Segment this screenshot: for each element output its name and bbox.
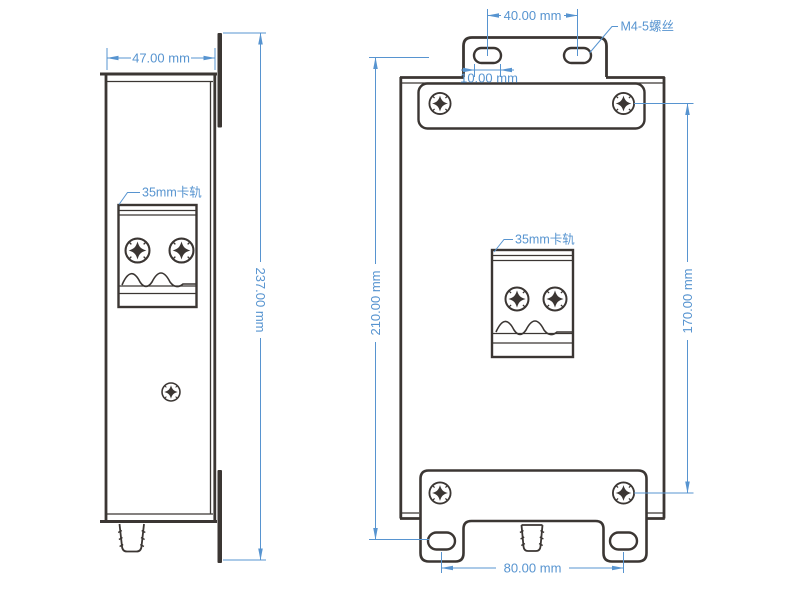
screw-icon: [162, 383, 180, 401]
screw-icon: [126, 239, 150, 263]
side-mounting-plate-top: [218, 33, 223, 128]
screw-icon: [544, 288, 567, 311]
mount-slot-bottom-left: [428, 533, 455, 550]
dim-top-slot-spacing-text: 40.00 mm: [504, 8, 562, 23]
screw-icon: [170, 239, 194, 263]
din-rail-label-side: 35mm卡轨: [119, 186, 202, 205]
screw-icon: [429, 93, 450, 114]
power-plug-side: [118, 524, 145, 552]
dim-bottom-slot-spacing-text: 80.00 mm: [504, 561, 562, 576]
screw-icon: [613, 482, 634, 503]
dim-left-height: 210.00 mm: [368, 58, 429, 540]
side-mounting-plate-bottom: [218, 470, 223, 563]
dim-slot-width-text: 10.00 mm: [460, 71, 518, 86]
dim-bottom-slot-spacing: 80.00 mm: [442, 552, 624, 576]
drawing-canvas: 35mm卡轨 47.00 mm 237.00 mm: [0, 0, 800, 600]
front-view: 35mm卡轨 40.00 mm 10.00 mm: [368, 8, 695, 576]
bottom-bracket-plate: [421, 471, 647, 562]
screw-spec-label-text: M4-5螺丝: [621, 20, 674, 34]
dim-right-height-text: 170.00 mm: [680, 268, 695, 333]
power-plug-front: [520, 525, 544, 551]
clip-spring-wave: [122, 273, 197, 287]
din-rail-clip-front: [492, 250, 573, 357]
mount-slot-bottom-right: [610, 533, 637, 550]
side-view: 35mm卡轨 47.00 mm 237.00 mm: [100, 33, 268, 563]
dim-top-slot-spacing: 40.00 mm: [488, 8, 578, 56]
din-rail-clip-side: [119, 205, 197, 307]
clip-spring-wave: [496, 321, 572, 335]
dim-side-height-text: 237.00 mm: [253, 267, 268, 332]
din-rail-label-front-text: 35mm卡轨: [515, 233, 575, 247]
screw-icon: [429, 482, 450, 503]
dim-left-height-text: 210.00 mm: [368, 270, 383, 335]
dim-side-width-text: 47.00 mm: [132, 51, 190, 66]
dim-side-width: 47.00 mm: [107, 48, 215, 70]
din-rail-label-side-text: 35mm卡轨: [142, 186, 202, 200]
screw-spec-label: M4-5螺丝: [590, 20, 674, 54]
top-bracket-plate: [419, 84, 645, 129]
dim-slot-width: 10.00 mm: [460, 64, 518, 86]
screw-icon: [613, 93, 634, 114]
screw-icon: [506, 288, 529, 311]
dim-side-height: 237.00 mm: [223, 33, 268, 560]
